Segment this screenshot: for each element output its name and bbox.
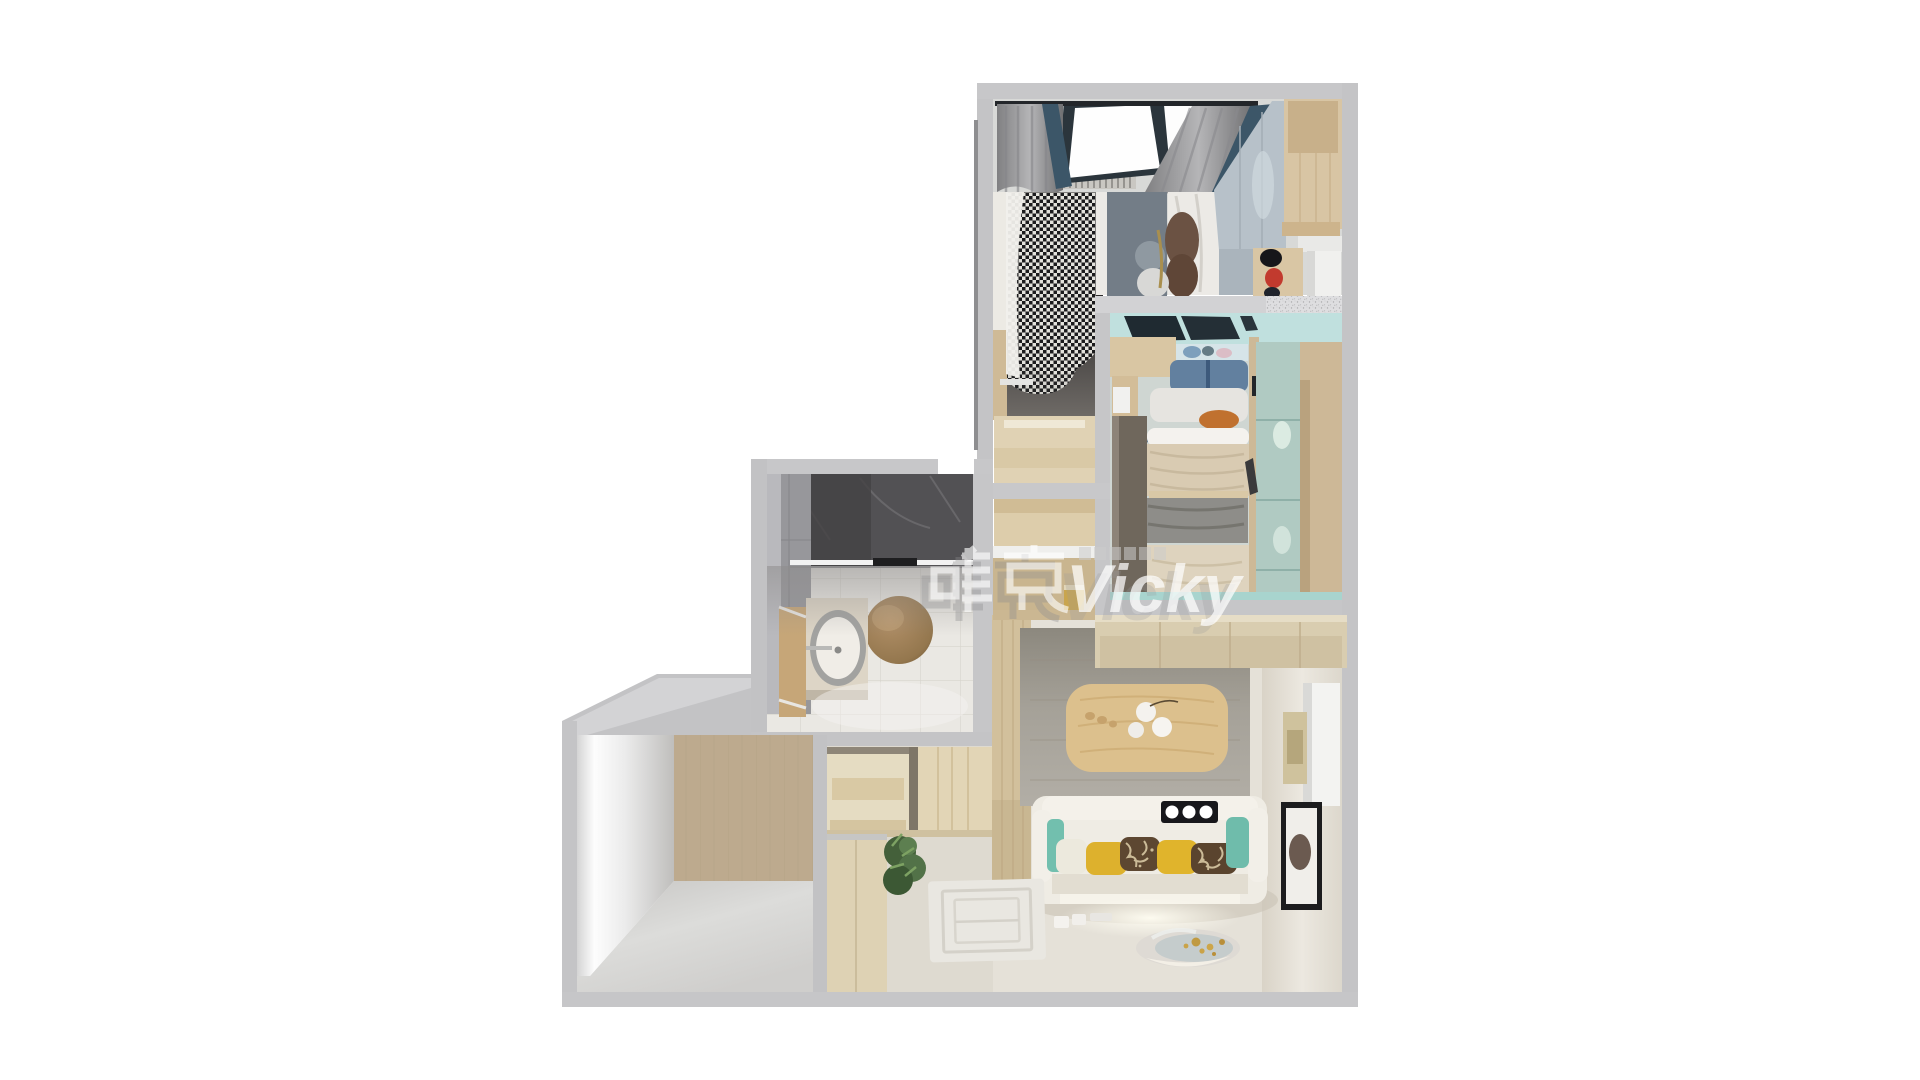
svg-text:Vicky: Vicky bbox=[1066, 551, 1244, 627]
